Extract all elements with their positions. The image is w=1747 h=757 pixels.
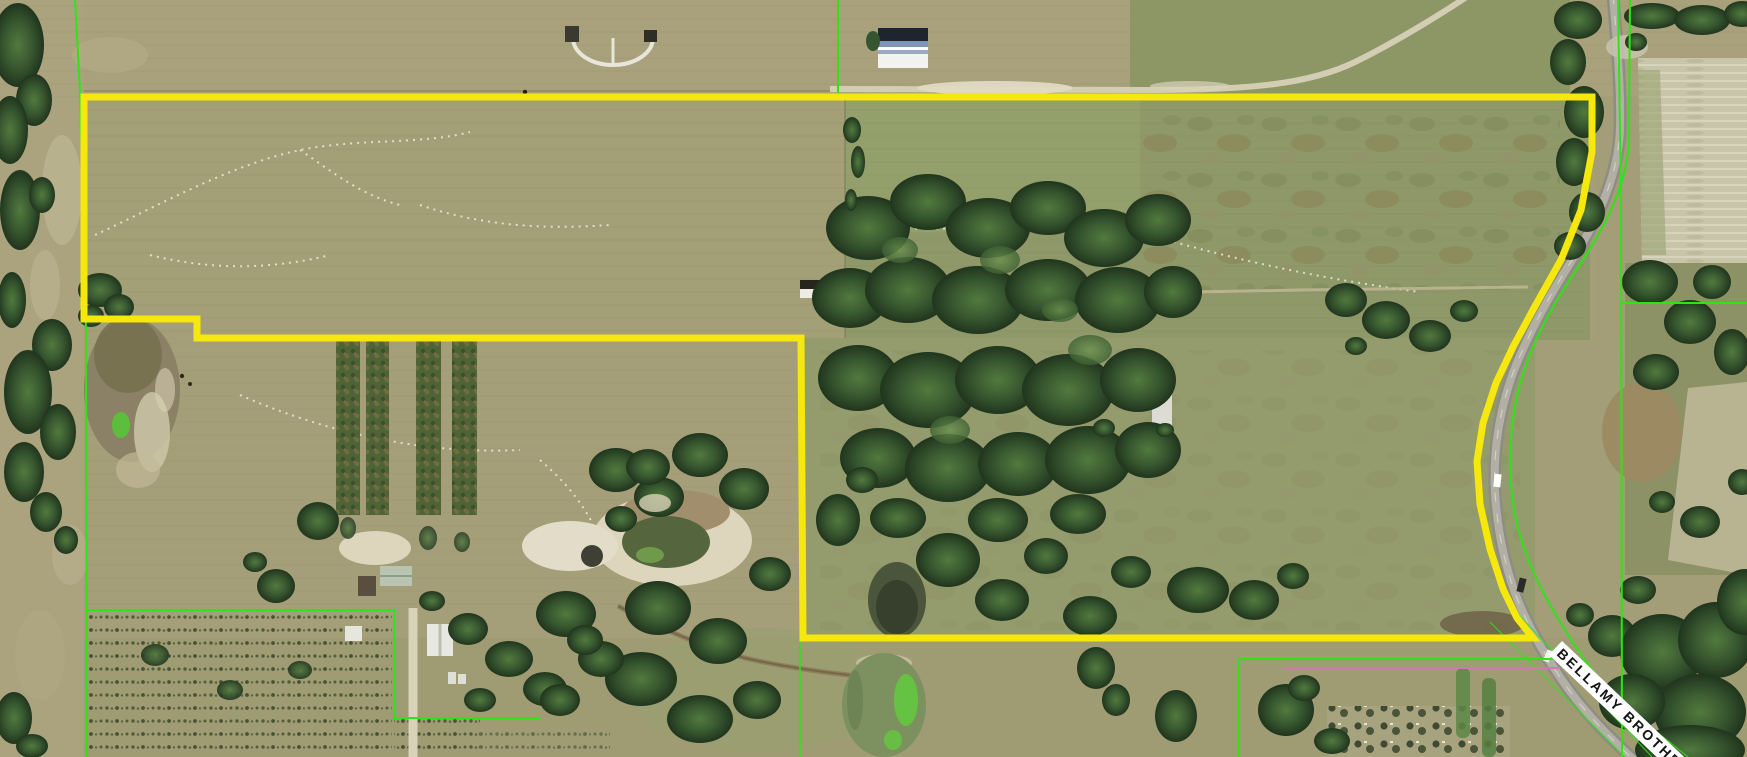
animal-dot bbox=[188, 382, 192, 386]
white-truck bbox=[1493, 474, 1501, 488]
dark-pond bbox=[868, 562, 926, 638]
algae-pond bbox=[842, 653, 926, 757]
animal-dot bbox=[180, 374, 184, 378]
aerial-imagery bbox=[0, 0, 1747, 757]
aerial-map-canvas[interactable]: BELLAMY BROTHERS BOU bbox=[0, 0, 1747, 757]
